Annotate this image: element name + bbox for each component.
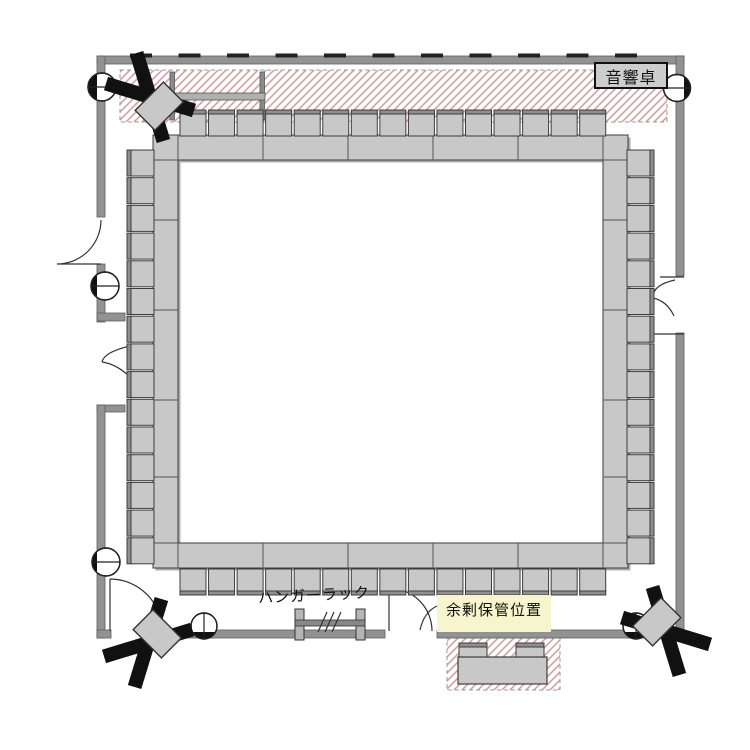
chair-left xyxy=(127,344,154,370)
partition-rail-bar xyxy=(170,93,265,100)
wall-segment xyxy=(97,313,125,321)
chair-top xyxy=(408,110,434,136)
sound-console-label: 音響卓 xyxy=(594,62,668,89)
chair-top xyxy=(351,110,377,136)
chair-bottom xyxy=(580,569,606,595)
chair-left xyxy=(127,482,154,508)
chair-right xyxy=(627,482,654,508)
chair-top xyxy=(523,110,549,136)
chair-top xyxy=(551,110,577,136)
chair-top xyxy=(237,110,263,136)
window-mullion-tick xyxy=(373,54,395,58)
chair-left xyxy=(127,427,154,453)
chair-top xyxy=(580,110,606,136)
chair-bottom xyxy=(209,569,235,595)
floor-plan: 音響卓 ハンガーラック 余剰保管位置 xyxy=(0,0,750,750)
wall-column-icon xyxy=(91,547,120,577)
chair-left xyxy=(127,178,154,204)
chair-bottom xyxy=(380,569,406,595)
chair-left xyxy=(127,261,154,287)
floor-plan-drawing xyxy=(0,0,750,750)
window-mullion-tick xyxy=(567,54,589,58)
storage-table xyxy=(458,657,547,684)
chair-right xyxy=(627,427,654,453)
chair-right xyxy=(627,344,654,370)
table-band-bottom xyxy=(153,543,628,568)
table-band-top xyxy=(153,135,628,160)
chair-bottom xyxy=(180,569,206,595)
chair-right xyxy=(627,538,654,564)
speaker-icon xyxy=(97,592,198,693)
chair-right xyxy=(627,261,654,287)
chair-right xyxy=(627,178,654,204)
window-mullion-tick xyxy=(518,54,540,58)
chair-right xyxy=(627,316,654,342)
window-mullion-tick xyxy=(470,54,492,58)
window-mullion-tick xyxy=(227,54,249,58)
window-mullion-tick xyxy=(421,54,443,58)
chair-right xyxy=(627,205,654,231)
chair-left xyxy=(127,205,154,231)
chair-bottom xyxy=(494,569,520,595)
chair-bottom xyxy=(466,569,492,595)
chair-top xyxy=(380,110,406,136)
chair-bottom xyxy=(437,569,463,595)
table-band-left xyxy=(153,160,178,543)
chair-right xyxy=(627,289,654,315)
chair-right xyxy=(627,372,654,398)
window-mullion-tick xyxy=(276,54,298,58)
chair-left xyxy=(127,510,154,536)
chair-top xyxy=(266,110,292,136)
chair-left xyxy=(127,233,154,259)
chair-left xyxy=(127,150,154,176)
chair-right xyxy=(627,510,654,536)
chair-right xyxy=(627,455,654,481)
chair-bottom xyxy=(408,569,434,595)
chair-right xyxy=(627,150,654,176)
chair-right xyxy=(627,399,654,425)
wall-column-icon xyxy=(90,271,119,301)
table-band-right xyxy=(603,160,628,543)
table-division-lines xyxy=(153,135,628,568)
wall-segment xyxy=(97,630,111,638)
wall-segment xyxy=(97,405,105,638)
surplus-label-leader-line xyxy=(420,606,437,630)
chair-top xyxy=(494,110,520,136)
chair-left xyxy=(127,538,154,564)
chair-bottom xyxy=(551,569,577,595)
chair-top xyxy=(437,110,463,136)
window-mullion-tick xyxy=(324,54,346,58)
chair-bottom xyxy=(523,569,549,595)
chair-right xyxy=(627,233,654,259)
chair-top xyxy=(323,110,349,136)
left-lower-double-door-symbol xyxy=(102,346,130,376)
chair-left xyxy=(127,399,154,425)
chair-left xyxy=(127,289,154,315)
chair-left xyxy=(127,316,154,342)
window-mullion-tick xyxy=(179,54,201,58)
chair-top xyxy=(209,110,235,136)
chair-left xyxy=(127,372,154,398)
chair-left xyxy=(127,455,154,481)
chair-top xyxy=(294,110,320,136)
left-upper-door-swing xyxy=(57,220,101,264)
window-mullion-tick xyxy=(615,54,637,58)
chair-top xyxy=(466,110,492,136)
surplus-storage-label: 余剰保管位置 xyxy=(437,595,551,632)
wall-segment xyxy=(676,333,684,638)
